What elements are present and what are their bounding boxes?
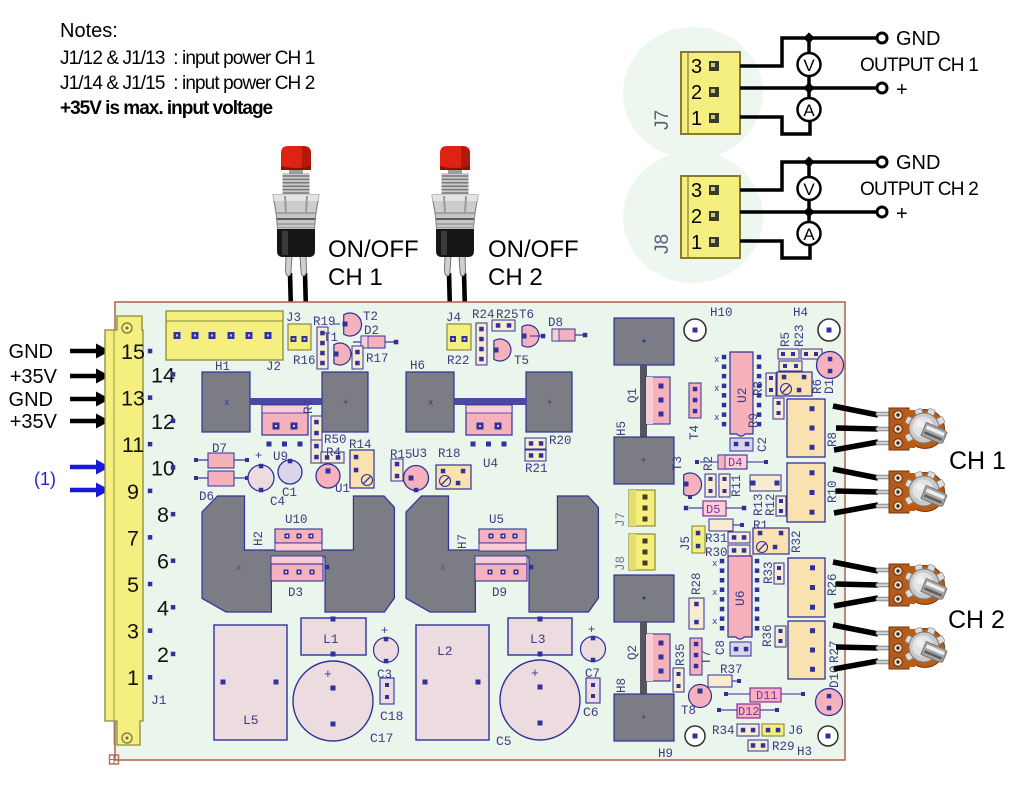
svg-text:x: x	[428, 398, 433, 408]
svg-text:R5: R5	[779, 332, 793, 347]
svg-text:R19: R19	[313, 315, 336, 329]
svg-text:R35: R35	[674, 643, 688, 666]
svg-text:x: x	[224, 398, 229, 408]
svg-text:J1: J1	[151, 693, 167, 708]
svg-text:x: x	[440, 563, 445, 573]
svg-text:ON/OFF: ON/OFF	[328, 236, 419, 263]
svg-text:R18: R18	[438, 447, 461, 461]
svg-text:x: x	[236, 563, 241, 573]
svg-text:9: 9	[127, 480, 139, 504]
svg-text:J4: J4	[446, 311, 461, 325]
svg-text:(1): (1)	[34, 469, 56, 489]
svg-text:+: +	[641, 456, 646, 466]
svg-text:R15: R15	[390, 448, 413, 462]
svg-text:L3: L3	[530, 632, 546, 647]
svg-text:D3: D3	[288, 586, 303, 600]
svg-text:H6: H6	[410, 359, 425, 373]
svg-text:5: 5	[127, 573, 139, 597]
svg-text:U2: U2	[735, 387, 750, 403]
svg-text:H8: H8	[615, 678, 629, 693]
svg-text:GND: GND	[9, 341, 53, 363]
svg-text:13: 13	[121, 387, 145, 411]
svg-text:R14: R14	[349, 438, 372, 452]
svg-text:Q2: Q2	[626, 645, 640, 660]
svg-text:+: +	[547, 398, 552, 408]
svg-text:x: x	[714, 355, 719, 365]
svg-text:Q1: Q1	[626, 388, 640, 403]
svg-text:R29: R29	[772, 740, 795, 754]
svg-text:J1/12 & J1/13 : input power C: J1/12 & J1/13 : input power CH 1	[60, 48, 315, 69]
svg-text:6: 6	[157, 550, 169, 574]
svg-text:L2: L2	[437, 644, 453, 659]
svg-text:+: +	[641, 713, 646, 723]
svg-text:R20: R20	[549, 434, 572, 448]
svg-text:15: 15	[121, 340, 145, 364]
svg-text:T7: T7	[700, 650, 714, 665]
svg-text:T6: T6	[519, 308, 534, 322]
svg-text:OUTPUT CH 2: OUTPUT CH 2	[860, 179, 978, 200]
svg-text:2: 2	[691, 82, 702, 104]
svg-text:x: x	[714, 384, 719, 394]
svg-text:H5: H5	[615, 421, 629, 436]
svg-text:J3: J3	[286, 311, 301, 325]
svg-text:C6: C6	[583, 705, 599, 720]
svg-text:R34: R34	[712, 724, 735, 738]
svg-text:3: 3	[691, 180, 702, 202]
svg-text:T5: T5	[514, 354, 529, 368]
svg-text:3: 3	[127, 620, 139, 644]
svg-text:+: +	[588, 623, 595, 637]
svg-text:+: +	[896, 79, 908, 101]
svg-text:1: 1	[691, 232, 702, 254]
svg-text:C18: C18	[380, 709, 403, 724]
svg-text:R21: R21	[525, 462, 548, 476]
svg-text:J2: J2	[266, 360, 281, 374]
svg-text:R37: R37	[720, 663, 743, 677]
svg-text:L1: L1	[323, 632, 339, 647]
svg-text:T2: T2	[363, 310, 378, 324]
svg-text:R28: R28	[690, 572, 704, 595]
svg-text:GND: GND	[896, 152, 940, 174]
svg-text:J7: J7	[652, 110, 673, 130]
svg-text:V: V	[803, 180, 815, 199]
svg-text:T4: T4	[688, 425, 702, 440]
svg-text:D4: D4	[728, 456, 742, 470]
svg-text:R27: R27	[828, 640, 842, 663]
svg-text:R16: R16	[293, 354, 316, 368]
svg-text:7: 7	[127, 526, 139, 550]
svg-text:+35V is max. input voltage: +35V is max. input voltage	[60, 98, 273, 119]
svg-text:D8: D8	[548, 316, 563, 330]
svg-text:L5: L5	[243, 713, 259, 728]
svg-text:T3: T3	[671, 456, 685, 471]
svg-text:U10: U10	[285, 513, 308, 527]
svg-text:+35V: +35V	[10, 411, 58, 433]
svg-text:U6: U6	[733, 590, 748, 606]
svg-text:R8: R8	[826, 432, 840, 447]
svg-text:C8: C8	[714, 640, 728, 655]
svg-text:R36: R36	[761, 624, 775, 647]
svg-text:R50: R50	[324, 433, 347, 447]
svg-text:3: 3	[691, 56, 702, 78]
svg-text:V: V	[803, 56, 815, 75]
svg-text:R23: R23	[793, 324, 807, 347]
svg-text:R31: R31	[705, 532, 728, 546]
svg-text:+: +	[255, 449, 262, 463]
svg-text:R11: R11	[730, 474, 744, 497]
svg-text:GND: GND	[9, 389, 53, 411]
svg-text:D7: D7	[212, 442, 227, 456]
svg-text:D12: D12	[738, 705, 760, 719]
svg-text:J5: J5	[679, 536, 693, 551]
svg-text:U4: U4	[483, 457, 498, 471]
svg-text:C5: C5	[496, 734, 512, 749]
svg-text:U1: U1	[335, 482, 350, 496]
svg-text:+: +	[343, 398, 348, 408]
svg-text:2: 2	[691, 206, 702, 228]
svg-text:+: +	[324, 667, 332, 682]
svg-text:+: +	[531, 666, 539, 681]
svg-text:C2: C2	[756, 437, 770, 452]
svg-text:Notes:: Notes:	[60, 20, 118, 42]
svg-text:x: x	[712, 617, 717, 627]
svg-text:R7: R7	[302, 399, 316, 414]
svg-text:H9: H9	[658, 747, 673, 761]
svg-text:D5: D5	[706, 503, 720, 517]
svg-text:D1: D1	[823, 379, 837, 394]
svg-text:8: 8	[157, 503, 169, 527]
svg-text:D9: D9	[492, 586, 507, 600]
svg-text:+: +	[896, 203, 908, 225]
svg-text:4: 4	[157, 596, 169, 620]
svg-text:+: +	[381, 624, 388, 638]
svg-text:H3: H3	[797, 745, 812, 759]
svg-text:R3: R3	[752, 381, 766, 396]
svg-text:U5: U5	[489, 513, 504, 527]
svg-text:CH 1: CH 1	[328, 264, 383, 291]
svg-text:CH 2: CH 2	[948, 606, 1005, 634]
svg-text:D2: D2	[364, 324, 379, 338]
svg-text:x: x	[714, 413, 719, 423]
svg-text:2: 2	[157, 643, 169, 667]
svg-text:x: x	[712, 559, 717, 569]
svg-text:A: A	[803, 101, 815, 120]
svg-text:H10: H10	[710, 306, 733, 320]
svg-text:D11: D11	[756, 689, 778, 703]
svg-text:ON/OFF: ON/OFF	[488, 236, 579, 263]
svg-text:J6: J6	[788, 724, 803, 738]
svg-text:R17: R17	[366, 352, 389, 366]
svg-text:R30: R30	[705, 546, 728, 560]
svg-text:R2: R2	[702, 456, 716, 471]
svg-text:H2: H2	[252, 531, 266, 546]
svg-text:H4: H4	[793, 306, 808, 320]
svg-text:J8: J8	[614, 556, 628, 571]
svg-text:C1: C1	[282, 486, 297, 500]
svg-text:+35V: +35V	[10, 366, 58, 388]
svg-text:CH 2: CH 2	[488, 264, 543, 291]
svg-text:R4: R4	[326, 446, 341, 460]
svg-text:H7: H7	[456, 534, 470, 549]
svg-text:R33: R33	[762, 561, 776, 584]
svg-text:1: 1	[127, 666, 139, 690]
svg-text:R22: R22	[447, 354, 470, 368]
svg-text:U3: U3	[412, 447, 427, 461]
svg-text:T8: T8	[681, 704, 696, 718]
svg-text:T1: T1	[323, 331, 338, 345]
svg-text:OUTPUT CH 1: OUTPUT CH 1	[860, 55, 978, 76]
svg-text:11: 11	[122, 433, 144, 457]
svg-text:R9: R9	[747, 413, 761, 428]
svg-text:A: A	[803, 225, 815, 244]
svg-text:GND: GND	[896, 28, 940, 50]
svg-text:C17: C17	[370, 731, 393, 746]
svg-text:J8: J8	[652, 234, 673, 254]
svg-text:R24: R24	[472, 308, 495, 322]
svg-text:1: 1	[691, 108, 702, 130]
svg-text:x: x	[712, 588, 717, 598]
svg-text:J1/14 & J1/15 : input power C: J1/14 & J1/15 : input power CH 2	[60, 73, 315, 94]
svg-text:CH 1: CH 1	[949, 447, 1006, 475]
svg-text:R32: R32	[790, 530, 804, 553]
svg-text:J7: J7	[614, 512, 628, 527]
